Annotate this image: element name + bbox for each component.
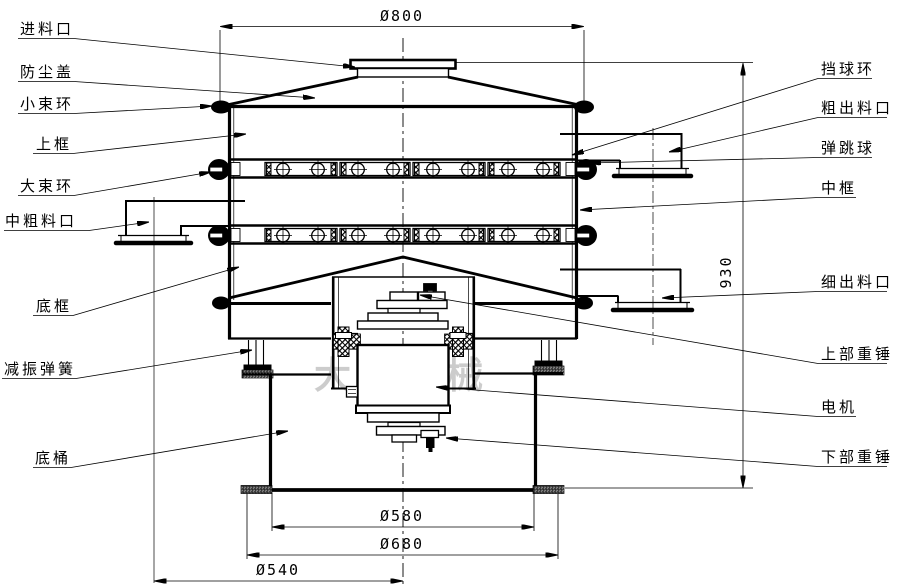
label-bottom-frame: 底框: [36, 297, 72, 315]
dim-total-height: 930: [717, 255, 735, 288]
bottom-frame-leader: [73, 267, 239, 316]
dim-top-diameter: Ø800: [380, 7, 424, 25]
label-base-barrel: 底桶: [35, 449, 71, 467]
bottom-clamp-right: [575, 297, 593, 310]
label-coarse-outlet: 粗出料口: [821, 99, 893, 117]
drawing-canvas: 大汉机械: [0, 0, 897, 587]
label-middle-coarse-outlet: 中粗料口: [5, 212, 77, 230]
bottom-clamp-left: [212, 297, 230, 310]
label-ball-stop-ring: 挡球环: [821, 60, 875, 78]
damping-spring-leader: [76, 350, 252, 379]
clamp-ring-blobs: [211, 101, 594, 310]
base-barrel-leader: [71, 431, 288, 468]
weight-bolt: [427, 438, 435, 448]
label-fine-outlet: 细出料口: [821, 273, 893, 291]
label-large-clamp-ring: 大束环: [20, 177, 74, 195]
small-clamp-ring-left: [211, 101, 231, 114]
sieve-decks: [208, 159, 597, 246]
clamp-bolt: [338, 327, 349, 357]
fine-outlet-leader: [662, 292, 818, 299]
dust-cover-leader: [74, 82, 315, 99]
label-damping-spring: 减振弹簧: [4, 360, 76, 378]
ball-tray: [265, 163, 337, 176]
feed-inlet-leader: [74, 39, 355, 68]
label-feed-inlet: 进料口: [20, 20, 74, 38]
coarse-outlet-leader: [669, 118, 818, 153]
motor-body: [347, 345, 451, 413]
middle-frame-leader: [580, 198, 818, 211]
label-bouncing-ball: 弹跳球: [821, 139, 875, 157]
lower-weight: [368, 413, 446, 452]
lower-weight-leader: [446, 438, 818, 467]
label-upper-frame: 上框: [36, 135, 72, 153]
bouncing-ball-leader: [589, 158, 818, 164]
dim-outlet-span: Ø540: [256, 561, 300, 579]
label-lower-weight: 下部重锤: [821, 448, 893, 466]
label-dust-cover: 防尘盖: [20, 63, 74, 81]
feed-inlet: [351, 60, 456, 77]
label-upper-weight: 上部重锤: [821, 345, 893, 363]
engineering-drawing-vibrating-sieve: 大汉机械: [0, 0, 897, 587]
dim-barrel-diameter: Ø580: [380, 507, 424, 525]
large-clamp-ring-leader: [74, 172, 211, 196]
small-clamp-ring-leader: [74, 106, 212, 114]
ball-stop-ring-leader: [572, 79, 818, 156]
weight-bolt: [424, 284, 437, 292]
label-middle-frame: 中框: [821, 179, 857, 197]
motor-leader: [436, 387, 818, 417]
sieve-deck-2: [208, 225, 597, 246]
label-small-clamp-ring: 小束环: [20, 95, 74, 113]
label-motor: 电机: [821, 398, 857, 416]
dim-base-diameter: Ø680: [380, 535, 424, 553]
ball-tray: [265, 229, 337, 242]
middle-coarse-outlet-leader: [89, 222, 149, 231]
clamp-bolt: [453, 327, 464, 357]
upper-frame-leader: [73, 134, 246, 154]
sieve-deck-1: [208, 159, 597, 180]
